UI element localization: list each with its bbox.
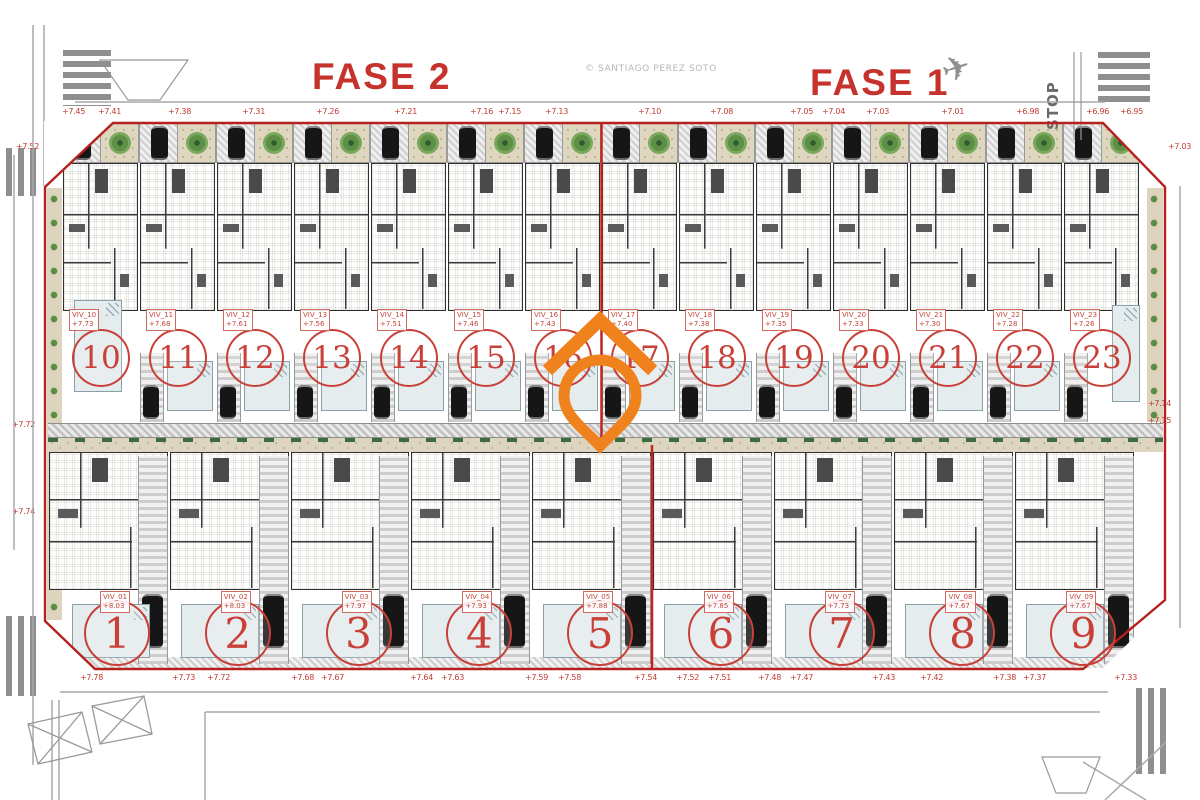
elevation-label: +6.98 <box>1016 107 1039 116</box>
unit-elevation: +7.85 <box>707 602 731 611</box>
unit-elevation: +7.73 <box>828 602 852 611</box>
elevation-label: +7.05 <box>790 107 813 116</box>
unit-code: VIV_11 <box>149 311 173 320</box>
unit-number-badge: 23 <box>1073 329 1131 387</box>
crosswalk <box>63 50 111 106</box>
elevation-label: +7.42 <box>920 673 943 682</box>
unit-number-badge: 15 <box>457 329 515 387</box>
unit-code: VIV_14 <box>380 311 404 320</box>
tree-icon <box>109 132 131 154</box>
elevation-label: +7.51 <box>708 673 731 682</box>
unit-label: VIV_18 +7.38 <box>685 309 715 331</box>
house-unit[interactable]: VIV_08 +7.67 8 <box>893 452 1014 669</box>
unit-elevation: +7.68 <box>149 320 173 329</box>
unit-number-badge: 14 <box>380 329 438 387</box>
front-garden <box>486 123 524 163</box>
elevation-label: +7.67 <box>321 673 344 682</box>
driveway <box>678 123 717 163</box>
elevation-label: +7.63 <box>441 673 464 682</box>
street-strip <box>678 123 755 163</box>
street-strip <box>832 123 909 163</box>
house-unit[interactable]: VIV_19 +7.35 19 <box>755 123 832 423</box>
unit-code: VIV_06 <box>707 593 731 602</box>
house-unit[interactable]: VIV_21 +7.30 21 <box>909 123 986 423</box>
house-unit[interactable]: VIV_01 +8.03 1 <box>48 452 169 669</box>
elevation-label: +7.26 <box>316 107 339 116</box>
unit-number: 21 <box>928 340 967 376</box>
unit-number: 2 <box>224 609 251 658</box>
house-unit[interactable]: VIV_16 +7.43 16 <box>524 123 601 423</box>
car-icon <box>528 385 544 419</box>
unit-code: VIV_12 <box>226 311 250 320</box>
elevation-label: +7.01 <box>941 107 964 116</box>
car-icon <box>382 126 399 160</box>
front-garden <box>794 123 832 163</box>
street-box-shapes <box>28 696 152 764</box>
front-garden <box>871 123 909 163</box>
car-icon <box>220 385 236 419</box>
crosswalk <box>1098 52 1150 106</box>
house-floorplan <box>910 163 985 311</box>
unit-label: VIV_07 +7.73 <box>825 591 855 613</box>
copyright-watermark: © SANTIAGO PEREZ SOTO <box>585 64 717 74</box>
elevation-label: +7.10 <box>638 107 661 116</box>
elevation-label: +7.72 <box>207 673 230 682</box>
car-icon <box>74 126 91 160</box>
unit-elevation: +7.97 <box>345 602 369 611</box>
unit-number: 7 <box>828 609 855 658</box>
unit-elevation: +7.67 <box>948 602 972 611</box>
unit-code: VIV_23 <box>1073 311 1097 320</box>
driveway <box>524 123 563 163</box>
house-unit[interactable]: VIV_04 +7.93 4 <box>410 452 531 669</box>
unit-elevation: +7.30 <box>919 320 943 329</box>
unit-elevation: +7.40 <box>611 320 635 329</box>
unit-code: VIV_17 <box>611 311 635 320</box>
unit-label: VIV_03 +7.97 <box>342 591 372 613</box>
car-icon <box>1075 126 1092 160</box>
elevation-label: +7.78 <box>80 673 103 682</box>
unit-number: 4 <box>466 609 493 658</box>
street-strip <box>293 123 370 163</box>
house-unit[interactable]: VIV_23 +7.26 23 <box>1063 123 1140 423</box>
car-icon <box>759 385 775 419</box>
car-icon <box>990 385 1006 419</box>
unit-number: 6 <box>708 609 735 658</box>
driveway <box>909 123 948 163</box>
house-unit[interactable]: VIV_06 +7.85 6 <box>652 452 773 669</box>
unit-label: VIV_05 +7.88 <box>583 591 613 613</box>
unit-number: 3 <box>345 609 372 658</box>
street-strip <box>447 123 524 163</box>
car-icon <box>998 126 1015 160</box>
elevation-label: +7.31 <box>242 107 265 116</box>
elevation-label: +7.14 <box>1148 399 1171 408</box>
tree-icon <box>802 132 824 154</box>
house-floorplan <box>525 163 600 311</box>
middle-road <box>48 423 1163 438</box>
elevation-label: +7.03 <box>1168 142 1191 151</box>
unit-code: VIV_07 <box>828 593 852 602</box>
tree-icon <box>879 132 901 154</box>
house-floorplan <box>63 163 138 311</box>
unit-number: 17 <box>620 340 659 376</box>
elevation-label: +7.33 <box>1114 673 1137 682</box>
tree-icon <box>263 132 285 154</box>
driveway <box>139 123 178 163</box>
unit-elevation: +7.43 <box>534 320 558 329</box>
elevation-label: +7.38 <box>993 673 1016 682</box>
stop-sign: STOP <box>1044 54 1062 130</box>
driveway <box>832 123 871 163</box>
unit-number: 22 <box>1005 340 1044 376</box>
house-unit[interactable]: VIV_18 +7.38 18 <box>678 123 755 423</box>
unit-label: VIV_22 +7.28 <box>993 309 1023 331</box>
unit-label: VIV_15 +7.46 <box>454 309 484 331</box>
unit-number: 8 <box>949 609 976 658</box>
car-icon <box>844 126 861 160</box>
car-icon <box>536 126 553 160</box>
unit-label: VIV_04 +7.93 <box>462 591 492 613</box>
unit-number-badge: 21 <box>919 329 977 387</box>
house-floorplan <box>679 163 754 311</box>
elevation-label: +7.64 <box>410 673 433 682</box>
unit-number-badge: 10 <box>72 329 130 387</box>
unit-code: VIV_20 <box>842 311 866 320</box>
unit-code: VIV_01 <box>103 593 127 602</box>
unit-elevation: +7.33 <box>842 320 866 329</box>
front-garden <box>332 123 370 163</box>
phase-2-title: FASE 2 <box>312 56 452 98</box>
tree-icon <box>956 132 978 154</box>
unit-elevation: +7.28 <box>996 320 1020 329</box>
unit-elevation: +7.93 <box>465 602 489 611</box>
unit-label: VIV_23 +7.26 <box>1070 309 1100 331</box>
unit-code: VIV_05 <box>586 593 610 602</box>
unit-number-badge: 22 <box>996 329 1054 387</box>
elevation-label: +7.68 <box>291 673 314 682</box>
street-strip <box>216 123 293 163</box>
unit-label: VIV_13 +7.56 <box>300 309 330 331</box>
unit-label: VIV_01 +8.03 <box>100 591 130 613</box>
crosswalk <box>1136 688 1172 774</box>
house-unit[interactable]: VIV_09 +7.67 9 <box>1014 452 1135 669</box>
car-icon <box>613 126 630 160</box>
elevation-label: +7.73 <box>172 673 195 682</box>
front-garden <box>409 123 447 163</box>
car-icon <box>451 385 467 419</box>
unit-code: VIV_18 <box>688 311 712 320</box>
house-floorplan <box>294 163 369 311</box>
car-icon <box>297 385 313 419</box>
unit-elevation: +7.73 <box>72 320 96 329</box>
driveway <box>216 123 255 163</box>
car-icon <box>767 126 784 160</box>
elevation-label: +7.47 <box>790 673 813 682</box>
tree-icon <box>417 132 439 154</box>
house-unit[interactable]: VIV_20 +7.33 20 <box>832 123 909 423</box>
car-icon <box>151 126 168 160</box>
elevation-label: +7.72 <box>12 420 35 429</box>
house-unit[interactable]: VIV_14 +7.51 14 <box>370 123 447 423</box>
house-floorplan <box>1064 163 1139 311</box>
driveway <box>370 123 409 163</box>
unit-label: VIV_21 +7.30 <box>916 309 946 331</box>
house-floorplan <box>756 163 831 311</box>
street-strip <box>601 123 678 163</box>
unit-elevation: +7.88 <box>586 602 610 611</box>
unit-number-badge: 17 <box>611 329 669 387</box>
house-unit[interactable]: VIV_03 +7.97 3 <box>290 452 411 669</box>
elevation-label: +7.08 <box>710 107 733 116</box>
unit-code: VIV_21 <box>919 311 943 320</box>
car-icon <box>913 385 929 419</box>
driveway <box>601 123 640 163</box>
driveway <box>1063 123 1102 163</box>
elevation-label: +7.15 <box>1148 416 1171 425</box>
car-icon <box>459 126 476 160</box>
front-garden <box>563 123 601 163</box>
front-garden <box>717 123 755 163</box>
house-unit[interactable]: VIV_10 +7.73 10 <box>62 123 139 423</box>
car-icon <box>690 126 707 160</box>
street-strip <box>139 123 216 163</box>
unit-elevation: +7.67 <box>1069 602 1093 611</box>
elevation-label: +7.04 <box>822 107 845 116</box>
unit-code: VIV_16 <box>534 311 558 320</box>
unit-number: 1 <box>104 609 131 658</box>
front-garden <box>178 123 216 163</box>
car-icon <box>1067 385 1083 419</box>
unit-elevation: +8.03 <box>224 602 248 611</box>
house-floorplan <box>833 163 908 311</box>
house-unit[interactable]: VIV_12 +7.61 12 <box>216 123 293 423</box>
unit-label: VIV_08 +7.67 <box>945 591 975 613</box>
unit-label: VIV_17 +7.40 <box>608 309 638 331</box>
house-unit[interactable]: VIV_15 +7.46 15 <box>447 123 524 423</box>
street-strip <box>62 123 139 163</box>
unit-elevation: +7.35 <box>765 320 789 329</box>
front-garden <box>1102 123 1140 163</box>
unit-number: 23 <box>1082 340 1121 376</box>
house-floorplan <box>140 163 215 311</box>
unit-label: VIV_12 +7.61 <box>223 309 253 331</box>
front-garden <box>948 123 986 163</box>
unit-number: 13 <box>312 340 351 376</box>
unit-number-badge: 12 <box>226 329 284 387</box>
unit-elevation: +7.46 <box>457 320 481 329</box>
unit-elevation: +7.26 <box>1073 320 1097 329</box>
elevation-label: +7.03 <box>866 107 889 116</box>
house-unit[interactable]: VIV_05 +7.88 5 <box>531 452 652 669</box>
unit-label: VIV_09 +7.67 <box>1066 591 1096 613</box>
unit-elevation: +7.61 <box>226 320 250 329</box>
car-icon <box>143 385 159 419</box>
elevation-label: +7.58 <box>558 673 581 682</box>
unit-number: 9 <box>1070 609 1097 658</box>
elevation-label: +7.13 <box>545 107 568 116</box>
elevation-label: +7.43 <box>872 673 895 682</box>
unit-number: 5 <box>587 609 614 658</box>
tree-icon <box>494 132 516 154</box>
unit-label: VIV_06 +7.85 <box>704 591 734 613</box>
crosswalk <box>6 148 40 196</box>
elevation-label: +7.52 <box>676 673 699 682</box>
unit-number: 15 <box>466 340 505 376</box>
driveway <box>755 123 794 163</box>
unit-number: 19 <box>774 340 813 376</box>
street-strip <box>755 123 832 163</box>
unit-number: 16 <box>543 340 582 376</box>
car-icon <box>305 126 322 160</box>
tree-icon <box>648 132 670 154</box>
elevation-label: +7.52 <box>16 142 39 151</box>
elevation-label: +7.45 <box>62 107 85 116</box>
driveway <box>986 123 1025 163</box>
house-floorplan <box>448 163 523 311</box>
car-icon <box>374 385 390 419</box>
driveway <box>447 123 486 163</box>
car-icon <box>228 126 245 160</box>
unit-number-badge: 16 <box>534 329 592 387</box>
unit-elevation: +8.03 <box>103 602 127 611</box>
car-icon <box>921 126 938 160</box>
garden-strip <box>1147 188 1163 422</box>
unit-code: VIV_22 <box>996 311 1020 320</box>
unit-label: VIV_14 +7.51 <box>377 309 407 331</box>
unit-number: 18 <box>697 340 736 376</box>
house-unit[interactable]: VIV_17 +7.40 17 <box>601 123 678 423</box>
front-garden <box>101 123 139 163</box>
street-strip <box>524 123 601 163</box>
street-strip <box>909 123 986 163</box>
elevation-label: +7.38 <box>168 107 191 116</box>
unit-label: VIV_02 +8.03 <box>221 591 251 613</box>
house-unit[interactable]: VIV_13 +7.56 13 <box>293 123 370 423</box>
unit-elevation: +7.38 <box>688 320 712 329</box>
front-garden <box>255 123 293 163</box>
unit-code: VIV_03 <box>345 593 369 602</box>
elevation-label: +7.54 <box>634 673 657 682</box>
elevation-label: +7.15 <box>498 107 521 116</box>
unit-number-badge: 18 <box>688 329 746 387</box>
unit-label: VIV_20 +7.33 <box>839 309 869 331</box>
house-unit[interactable]: VIV_07 +7.73 7 <box>773 452 894 669</box>
street-strip <box>370 123 447 163</box>
crosswalk <box>6 616 40 696</box>
unit-code: VIV_15 <box>457 311 481 320</box>
unit-elevation: +7.56 <box>303 320 327 329</box>
tree-icon <box>1110 132 1132 154</box>
tree-icon <box>725 132 747 154</box>
unit-code: VIV_13 <box>303 311 327 320</box>
unit-code: VIV_10 <box>72 311 96 320</box>
car-icon <box>605 385 621 419</box>
elevation-label: +6.96 <box>1086 107 1109 116</box>
house-floorplan <box>602 163 677 311</box>
elevation-label: +6.95 <box>1120 107 1143 116</box>
unit-code: VIV_02 <box>224 593 248 602</box>
house-floorplan <box>371 163 446 311</box>
driveway <box>62 123 101 163</box>
street-strip <box>1063 123 1140 163</box>
unit-code: VIV_19 <box>765 311 789 320</box>
house-floorplan <box>217 163 292 311</box>
unit-code: VIV_09 <box>1069 593 1093 602</box>
unit-number-badge: 19 <box>765 329 823 387</box>
unit-elevation: +7.51 <box>380 320 404 329</box>
tree-icon <box>571 132 593 154</box>
elevation-label: +7.48 <box>758 673 781 682</box>
elevation-label: +7.59 <box>525 673 548 682</box>
car-icon <box>682 385 698 419</box>
unit-number: 12 <box>235 340 274 376</box>
unit-label: VIV_11 +7.68 <box>146 309 176 331</box>
unit-code: VIV_08 <box>948 593 972 602</box>
unit-code: VIV_04 <box>465 593 489 602</box>
unit-number: 14 <box>389 340 428 376</box>
site-plan: VIV_10 +7.73 10 VIV_11 +7.68 11 <box>0 0 1200 800</box>
driveway <box>293 123 332 163</box>
tree-icon <box>340 132 362 154</box>
unit-number-badge: 20 <box>842 329 900 387</box>
house-unit[interactable]: VIV_22 +7.28 22 <box>986 123 1063 423</box>
tree-icon <box>1033 132 1055 154</box>
car-icon <box>836 385 852 419</box>
elevation-label: +7.21 <box>394 107 417 116</box>
house-unit[interactable]: VIV_11 +7.68 11 <box>139 123 216 423</box>
unit-number: 11 <box>158 340 197 376</box>
top-unit-row: VIV_10 +7.73 10 VIV_11 +7.68 11 <box>62 123 1140 423</box>
elevation-label: +7.16 <box>470 107 493 116</box>
unit-label: VIV_10 +7.73 <box>69 309 99 331</box>
house-floorplan <box>987 163 1062 311</box>
unit-label: VIV_19 +7.35 <box>762 309 792 331</box>
elevation-label: +7.41 <box>98 107 121 116</box>
elevation-label: +7.74 <box>12 507 35 516</box>
unit-number-badge: 11 <box>149 329 207 387</box>
unit-label: VIV_16 +7.43 <box>531 309 561 331</box>
bottom-unit-row: VIV_01 +8.03 1 VIV_02 +8.03 2 VIV_03 +7.… <box>48 452 1135 669</box>
unit-number: 10 <box>81 340 120 376</box>
tree-icon <box>186 132 208 154</box>
unit-number-badge: 13 <box>303 329 361 387</box>
phase-1-title: FASE 1 <box>810 62 950 104</box>
unit-number: 20 <box>851 340 890 376</box>
front-garden <box>640 123 678 163</box>
house-unit[interactable]: VIV_02 +8.03 2 <box>169 452 290 669</box>
elevation-label: +7.37 <box>1023 673 1046 682</box>
